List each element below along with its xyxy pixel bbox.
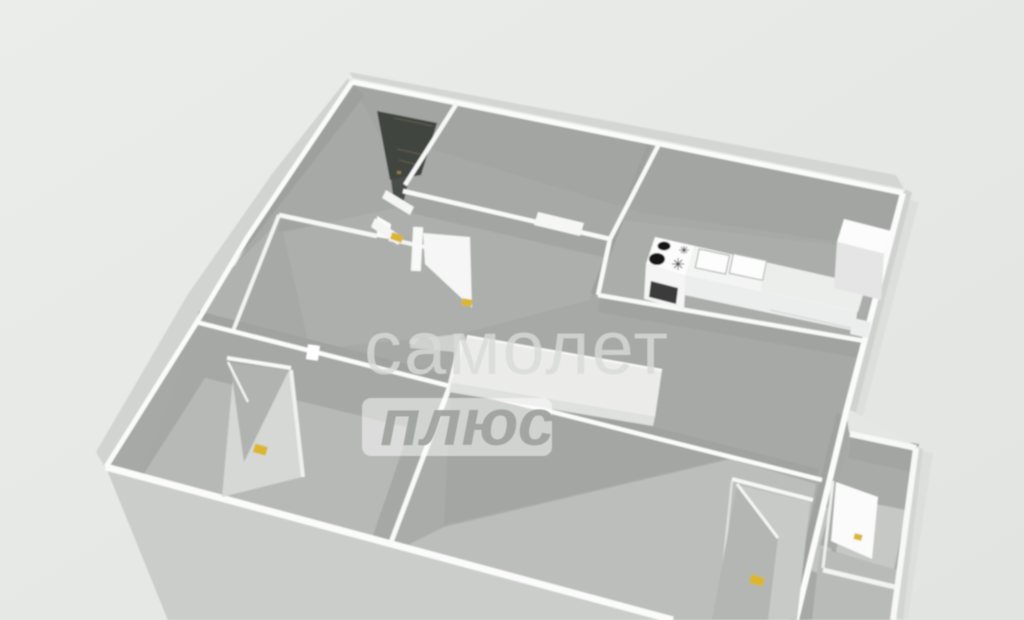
svg-text:самолет: самолет — [364, 306, 670, 391]
svg-text:плюс: плюс — [380, 385, 554, 459]
